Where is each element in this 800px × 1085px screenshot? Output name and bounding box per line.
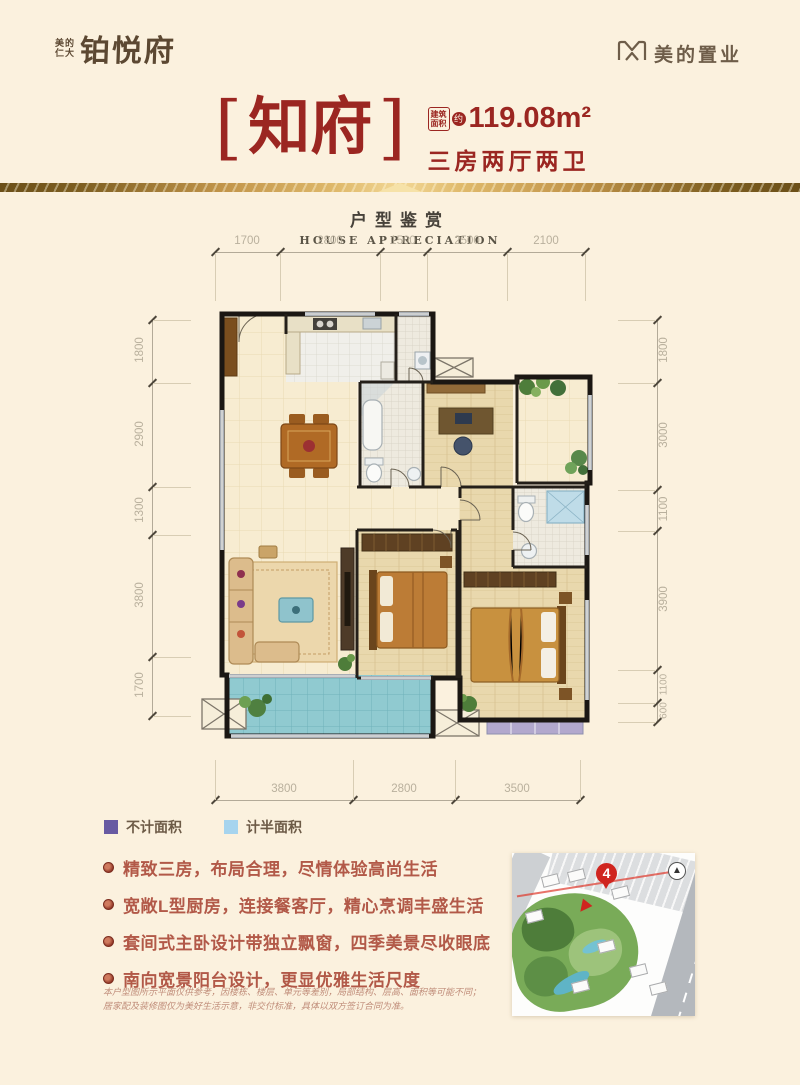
dim-top-1: 1700 [217, 235, 277, 247]
building-block [541, 873, 560, 888]
area-value: 119.08m² [469, 102, 592, 135]
feature-item: 精致三房，布局合理，尽情体验高尚生活 [103, 849, 491, 886]
dim-right-6: 600 [659, 681, 670, 741]
unit-name: [ 知府 ] [209, 88, 412, 166]
ext-line [618, 383, 656, 384]
ext-line [618, 703, 656, 704]
legend-label: 计半面积 [246, 817, 302, 837]
feature-item: 宽敞L型厨房，连接餐客厅，精心烹调丰盛生活 [103, 886, 491, 923]
ext-line [455, 760, 456, 800]
flyer-page: 美的 仁大 铂悦府 美的置业 [ 知府 ] 建筑 面积 约 [0, 0, 800, 1085]
dim-bottom-1: 3800 [254, 783, 314, 795]
ext-line [618, 670, 656, 671]
dim-top-4: 2500 [437, 235, 497, 247]
compass-icon: ▲ [668, 862, 686, 880]
dim-top-3: 1500 [373, 235, 433, 247]
dim-right-1: 1800 [658, 320, 670, 380]
ext-line [380, 253, 381, 301]
legend-label: 不计面积 [126, 817, 182, 837]
dim-left-1: 1800 [134, 320, 146, 380]
building-block [629, 963, 648, 978]
dim-right-4: 3900 [658, 569, 670, 629]
room-laundry [396, 314, 433, 382]
project-logo-name: 铂悦府 [79, 26, 177, 70]
dim-left-4: 3800 [134, 565, 146, 625]
plan-legend: 不计面积 计半面积 [104, 817, 302, 837]
ext-line [153, 716, 191, 717]
dim-line-top [215, 252, 585, 253]
brand-name: 美的置业 [654, 40, 742, 67]
logo-sub-line2: 仁大 [55, 48, 75, 58]
ext-line [153, 320, 191, 321]
ext-line [618, 722, 656, 723]
layout-type: 三房两厅两卫 [428, 142, 592, 176]
project-logo: 美的 仁大 铂悦府 [55, 26, 176, 70]
dim-line-bottom [215, 800, 580, 801]
ext-line [507, 253, 508, 301]
ext-line [153, 657, 191, 658]
bracket-left: [ [209, 92, 248, 162]
feature-text: 套间式主卧设计带独立飘窗，四季美景尽收眼底 [123, 929, 491, 954]
area-row: 建筑 面积 约 119.08m² [428, 102, 592, 135]
dim-bottom-3: 3500 [487, 783, 547, 795]
dim-left-5: 1700 [134, 655, 146, 715]
area-label-line2: 面积 [431, 119, 447, 128]
developer-brand: 美的置业 [617, 40, 742, 67]
ext-line [618, 531, 656, 532]
legend-no-count: 不计面积 [104, 817, 182, 837]
area-label-line1: 建筑 [431, 110, 447, 119]
legend-swatch-purple [104, 820, 118, 834]
dim-top-2: 2800 [300, 235, 360, 247]
project-logo-subtext: 美的 仁大 [55, 38, 75, 58]
feature-list: 精致三房，布局合理，尽情体验高尚生活 宽敞L型厨房，连接餐客厅，精心烹调丰盛生活… [103, 849, 491, 997]
bullet-icon [103, 973, 114, 984]
disclaimer-line2: 居家配及装修图仅为美好生活示意，非交付标准，具体以双方签订合同为准。 [103, 1000, 493, 1014]
unit-title-block: [ 知府 ] 建筑 面积 约 119.08m² 三房两厅两卫 [0, 88, 800, 176]
gold-divider [0, 183, 800, 192]
ext-line [153, 535, 191, 536]
dim-left-2: 2900 [134, 404, 146, 464]
feature-item: 套间式主卧设计带独立飘窗，四季美景尽收眼底 [103, 923, 491, 960]
ext-line [153, 487, 191, 488]
ext-line [427, 253, 428, 301]
disclaimer-line1: 本户型图所示平面仅供参考，因楼栋、楼层、单元等差别，局部结构、层高、面积等可能不… [103, 986, 493, 1000]
bracket-right: ] [372, 92, 411, 162]
legend-swatch-blue [224, 820, 238, 834]
bedroom2-furniture [362, 534, 452, 650]
unit-name-text: 知府 [248, 88, 372, 166]
disclaimer: 本户型图所示平面仅供参考，因楼栋、楼层、单元等差别，局部结构、层高、面积等可能不… [103, 986, 493, 1014]
dim-left-3: 1300 [134, 480, 146, 540]
ext-line [585, 253, 586, 301]
ext-line [618, 490, 656, 491]
feature-text: 宽敞L型厨房，连接餐客厅，精心烹调丰盛生活 [123, 892, 484, 917]
feature-text: 精致三房，布局合理，尽情体验高尚生活 [123, 855, 438, 880]
dim-right-2: 3000 [658, 405, 670, 465]
dim-top-5: 2100 [516, 235, 576, 247]
ext-line [215, 253, 216, 301]
site-plan: 4 ▲ [512, 853, 695, 1016]
room-corridor [357, 487, 460, 530]
bullet-icon [103, 862, 114, 873]
ext-line [618, 320, 656, 321]
dim-right-3: 1100 [658, 479, 670, 539]
ext-line [153, 383, 191, 384]
dining-set [281, 414, 337, 478]
ext-line [280, 253, 281, 301]
legend-half-count: 计半面积 [224, 817, 302, 837]
area-label-box: 建筑 面积 [428, 107, 450, 131]
floor-plan-drawing [195, 310, 615, 740]
dim-bottom-2: 2800 [374, 783, 434, 795]
laundry-fixtures [415, 352, 430, 369]
approx-badge: 约 [452, 112, 466, 126]
bullet-icon [103, 899, 114, 910]
section-title-cn: 户型鉴赏 [0, 206, 800, 231]
bullet-icon [103, 936, 114, 947]
unit-info: 建筑 面积 约 119.08m² 三房两厅两卫 [428, 102, 592, 176]
ext-line [215, 760, 216, 800]
ext-line [353, 760, 354, 800]
logo-sub-line1: 美的 [55, 38, 75, 48]
brand-m-house-icon [617, 40, 647, 67]
ext-line [580, 760, 581, 800]
location-marker: 4 [596, 863, 617, 884]
living-furniture [229, 546, 355, 671]
